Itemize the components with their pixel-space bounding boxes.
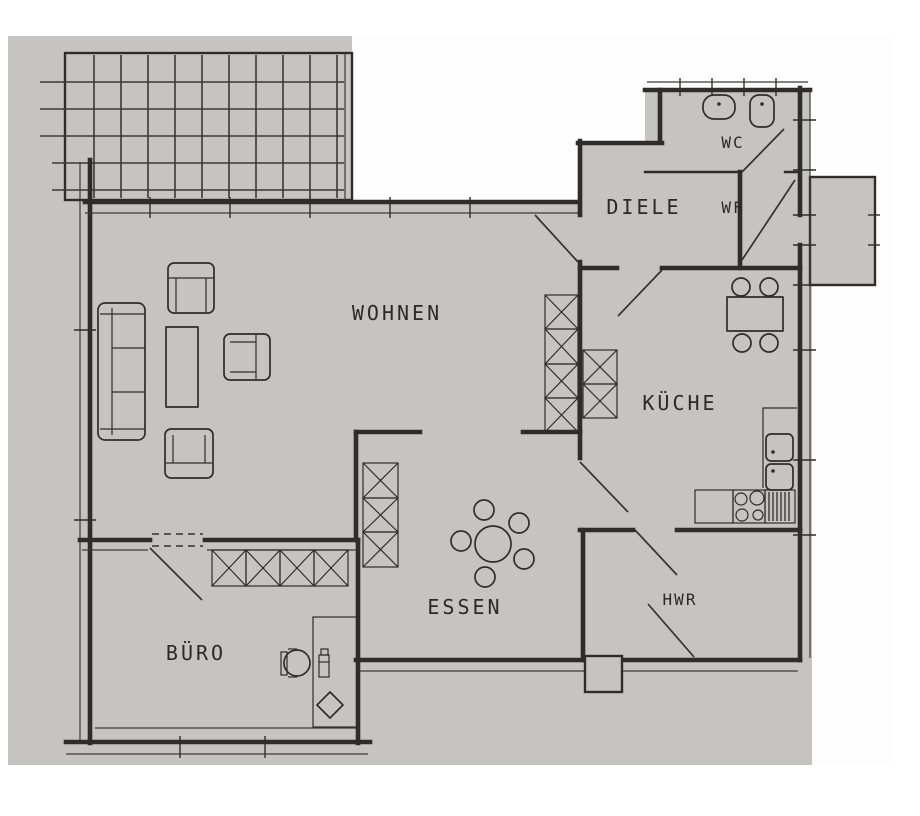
room-label-diele: DIELE: [606, 195, 681, 219]
room-label-wf: WF: [721, 198, 744, 217]
room-label-wohnen: WOHNEN: [352, 301, 442, 325]
floor-plan-page: WOHNEN DIELE WC WF KÜCHE ESSEN HWR BÜRO: [0, 0, 920, 816]
room-label-kueche: KÜCHE: [642, 391, 717, 415]
balcony-outline: [810, 177, 875, 285]
entrance-balcony: [810, 177, 880, 285]
chimney: [585, 656, 622, 692]
wc-toilet-mark: [760, 102, 764, 106]
room-label-wc: WC: [721, 133, 744, 152]
room-label-hwr: HWR: [663, 590, 698, 609]
room-label-essen: ESSEN: [427, 595, 502, 619]
floor-plan-svg: WOHNEN DIELE WC WF KÜCHE ESSEN HWR BÜRO: [0, 0, 920, 816]
room-label-buero: BÜRO: [166, 641, 226, 665]
wc-sink-drain: [717, 102, 721, 106]
